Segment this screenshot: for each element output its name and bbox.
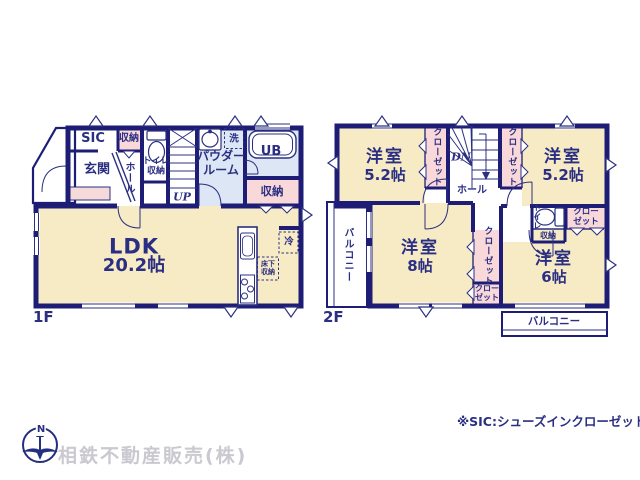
- label-stairs-up: UP: [173, 190, 191, 203]
- label-closet5-line2: ゼット: [573, 217, 599, 227]
- label-laundry: 洗: [229, 133, 239, 144]
- floor1-label: 1F: [33, 308, 54, 326]
- label-bed3-name: 洋室: [401, 238, 439, 258]
- stairs-up: [168, 128, 197, 188]
- company-name: 相鉄不動産販売(株): [58, 445, 247, 468]
- genkan-step: [68, 187, 110, 200]
- label-bed1-name: 洋室: [366, 147, 404, 167]
- label-closet5-line1: クロー: [573, 207, 599, 217]
- label-balcony-left: バルコニー: [341, 228, 353, 283]
- label-bed4-size: 6帖: [541, 268, 566, 286]
- label-hall-2f: ホール: [457, 185, 487, 197]
- floorplan-page: SIC 収納 玄関 ホール トイレ 収納 UP パウダー ルーム 洗 UB 収納…: [0, 0, 640, 480]
- label-sic: SIC: [81, 131, 105, 147]
- label-genkan: 玄関: [84, 162, 110, 178]
- label-stairs-dn: DN: [451, 150, 471, 163]
- label-storage-2f: 収納: [540, 231, 556, 241]
- label-closet3: クローゼット: [482, 226, 493, 286]
- ldk-room-area: [36, 206, 301, 306]
- label-bed4-name: 洋室: [535, 249, 573, 269]
- kitchen-counter: [238, 227, 257, 305]
- label-bed3-size: 8帖: [407, 257, 432, 275]
- floor2-label: 2F: [323, 308, 344, 326]
- compass-north-label: N: [36, 424, 46, 436]
- label-bed2-name: 洋室: [544, 147, 582, 167]
- label-toilet-2f: トイレ: [532, 204, 542, 231]
- sic-footnote: ※SIC:シューズインクローゼット: [457, 414, 640, 429]
- label-closet4-line2: ゼット: [475, 293, 499, 303]
- label-ldk-size: 20.2帖: [103, 255, 165, 277]
- label-powder-line2: ルーム: [203, 163, 239, 177]
- label-toilet-1f-line2: 収納: [147, 167, 165, 178]
- label-storage-top: 収納: [119, 133, 139, 145]
- label-bath: UB: [261, 144, 281, 160]
- label-closet2: クローゼット: [506, 127, 517, 187]
- sink-icon: [199, 129, 221, 150]
- label-closet1: クローゼット: [431, 127, 442, 187]
- label-storage-bath: 収納: [261, 185, 284, 199]
- label-powder-line1: パウダー: [197, 149, 245, 163]
- label-bed1-size: 5.2帖: [364, 166, 406, 184]
- label-fridge: 冷: [284, 236, 294, 247]
- label-bed2-size: 5.2帖: [542, 166, 584, 184]
- label-balcony-bottom: バルコニー: [528, 316, 580, 329]
- label-hall-1f: ホール: [122, 162, 134, 195]
- label-underfloor-line2: 収納: [261, 268, 275, 276]
